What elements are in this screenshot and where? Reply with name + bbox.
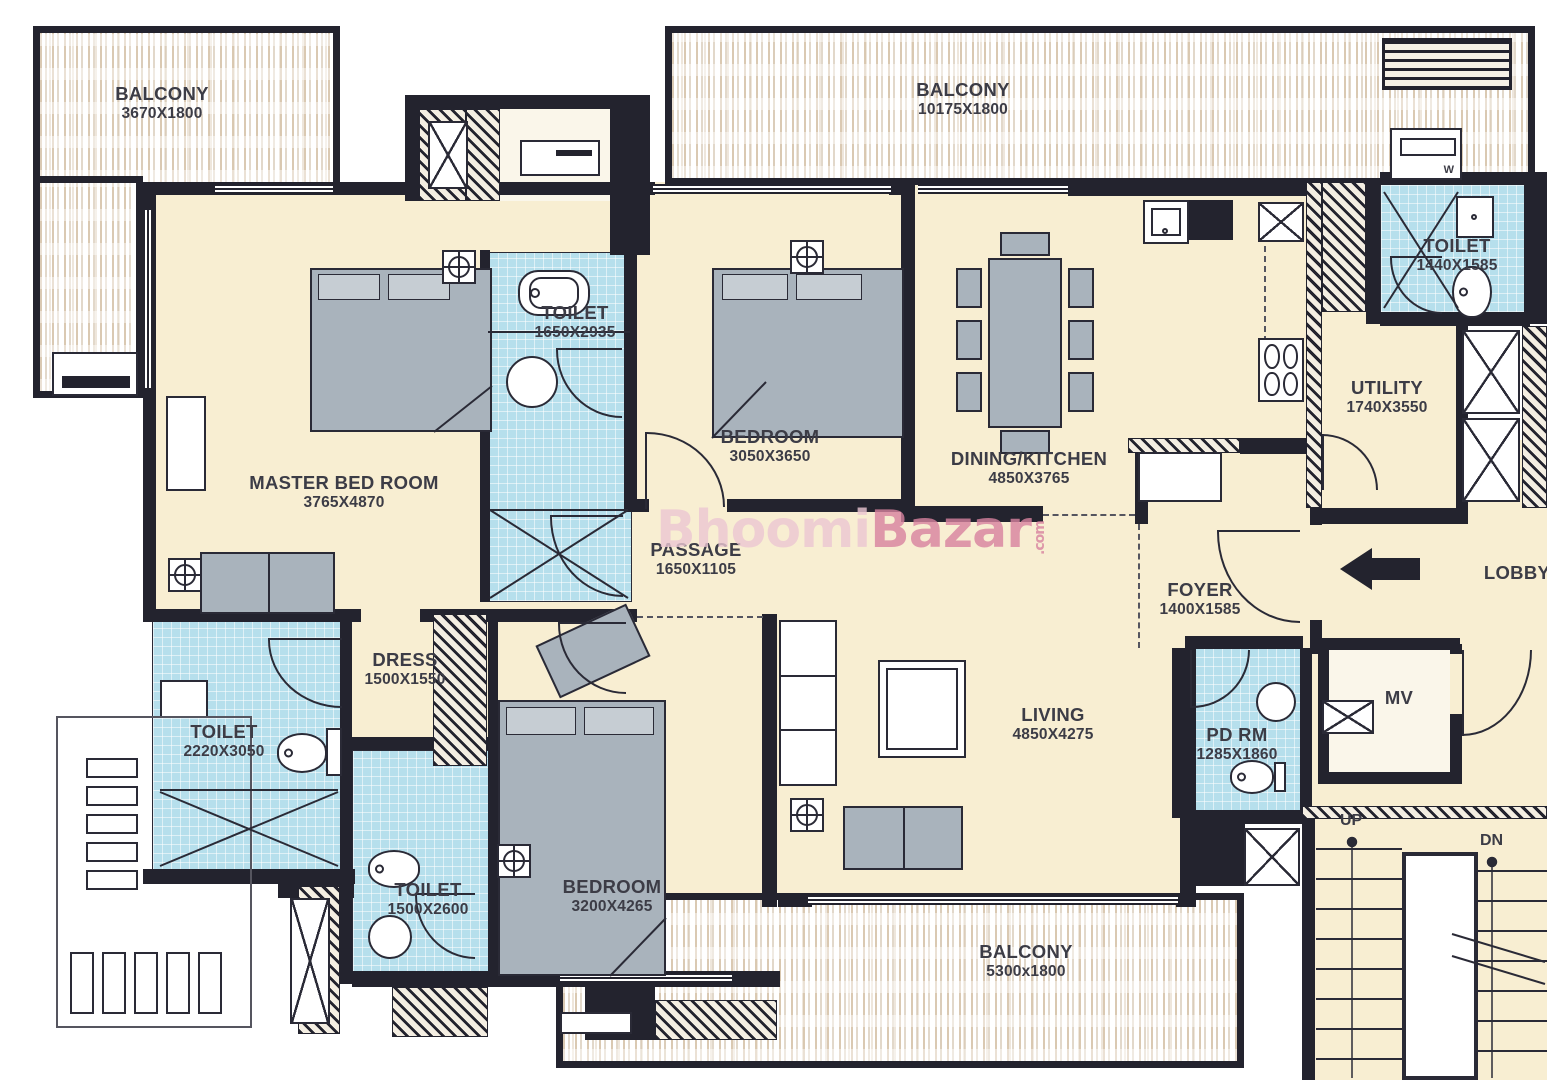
toilet-bl-shower — [368, 915, 412, 959]
label-bedroom3: BEDROOM3200X4265 — [563, 877, 662, 915]
watermark-brand-light: Bhoomi — [656, 506, 870, 555]
pd-rm-shower — [1256, 682, 1296, 722]
label-toilet-left: TOILET2220X3050 — [183, 722, 264, 760]
shaft-right-2 — [1462, 418, 1520, 502]
washing-machine-label: W — [1444, 164, 1454, 176]
shaft-right-1 — [1462, 330, 1520, 414]
kitchen-hob — [1258, 338, 1304, 402]
shaft-bottom-left — [290, 898, 330, 1024]
bedroom3-bed — [498, 700, 666, 976]
label-toilet-bl: TOILET1500X2600 — [387, 880, 468, 918]
dining-table — [988, 258, 1062, 428]
toilet-left-basin — [160, 680, 208, 718]
master-dresser — [166, 396, 206, 491]
label-bedroom2: BEDROOM3050X3650 — [721, 427, 820, 465]
master-bed — [310, 268, 492, 432]
balcony-grille — [1382, 38, 1512, 90]
toilet-left-wc — [277, 733, 327, 773]
living-shelf — [779, 620, 837, 786]
toilet-master-shower — [506, 356, 558, 408]
label-toilet-tr: TOILET1440X1585 — [1416, 236, 1497, 274]
shaft-below-pd-rm — [1244, 828, 1300, 886]
living-center-table — [878, 660, 966, 758]
living-floor — [775, 622, 1195, 902]
balcony-planter — [52, 352, 138, 396]
master-sofa — [200, 552, 335, 614]
watermark: BhoomiBazar.com — [656, 506, 1047, 555]
label-lobby: LOBBY — [1484, 563, 1547, 584]
watermark-tld: .com — [1033, 511, 1047, 555]
stairs-landing — [1402, 852, 1478, 1080]
pd-rm-wc-tank — [1274, 762, 1286, 792]
label-mv: MV — [1385, 688, 1413, 709]
label-toilet-master: TOILET1650X2935 — [534, 303, 615, 341]
geyser-unit — [520, 140, 600, 176]
label-pd-rm: PD RM1285X1860 — [1196, 725, 1277, 763]
label-balcony-bottom: BALCONY5300x1800 — [979, 942, 1073, 980]
label-utility: UTILITY1740X3550 — [1346, 378, 1427, 416]
washing-machine: W — [1390, 128, 1462, 180]
shaft-closet — [428, 121, 468, 189]
stairs-left-flight — [1316, 848, 1402, 1080]
kitchen-shaft — [1258, 202, 1304, 242]
label-balcony-top: BALCONY10175X1800 — [916, 80, 1010, 118]
label-stairs-up: UP — [1340, 812, 1362, 830]
living-sofa — [843, 806, 963, 870]
toilet-tr-basin — [1456, 196, 1494, 238]
stairs-right-flight — [1478, 870, 1547, 1080]
label-dining-kitchen: DINING/KITCHEN4850X3765 — [951, 449, 1107, 487]
toilet-left-wc-tank — [326, 728, 342, 776]
watermark-brand-dark: Bazar — [870, 506, 1031, 555]
bedroom2-bed — [712, 268, 904, 438]
shaft-mv — [1322, 700, 1374, 734]
floor-plan: W — [0, 0, 1547, 1080]
kitchen-sink — [1143, 200, 1189, 244]
label-dress: DRESS1500X1550 — [364, 650, 445, 688]
label-balcony-top-left: BALCONY3670X1800 — [115, 84, 209, 122]
label-foyer: FOYER1400X1585 — [1159, 580, 1240, 618]
kitchen-platform — [1138, 452, 1222, 502]
balcony-top — [665, 26, 1365, 185]
label-living: LIVING4850X4275 — [1012, 705, 1093, 743]
label-stairs-dn: DN — [1480, 832, 1503, 850]
pd-rm-wc — [1230, 760, 1274, 794]
label-master-bedroom: MASTER BED ROOM3765X4870 — [249, 473, 439, 511]
